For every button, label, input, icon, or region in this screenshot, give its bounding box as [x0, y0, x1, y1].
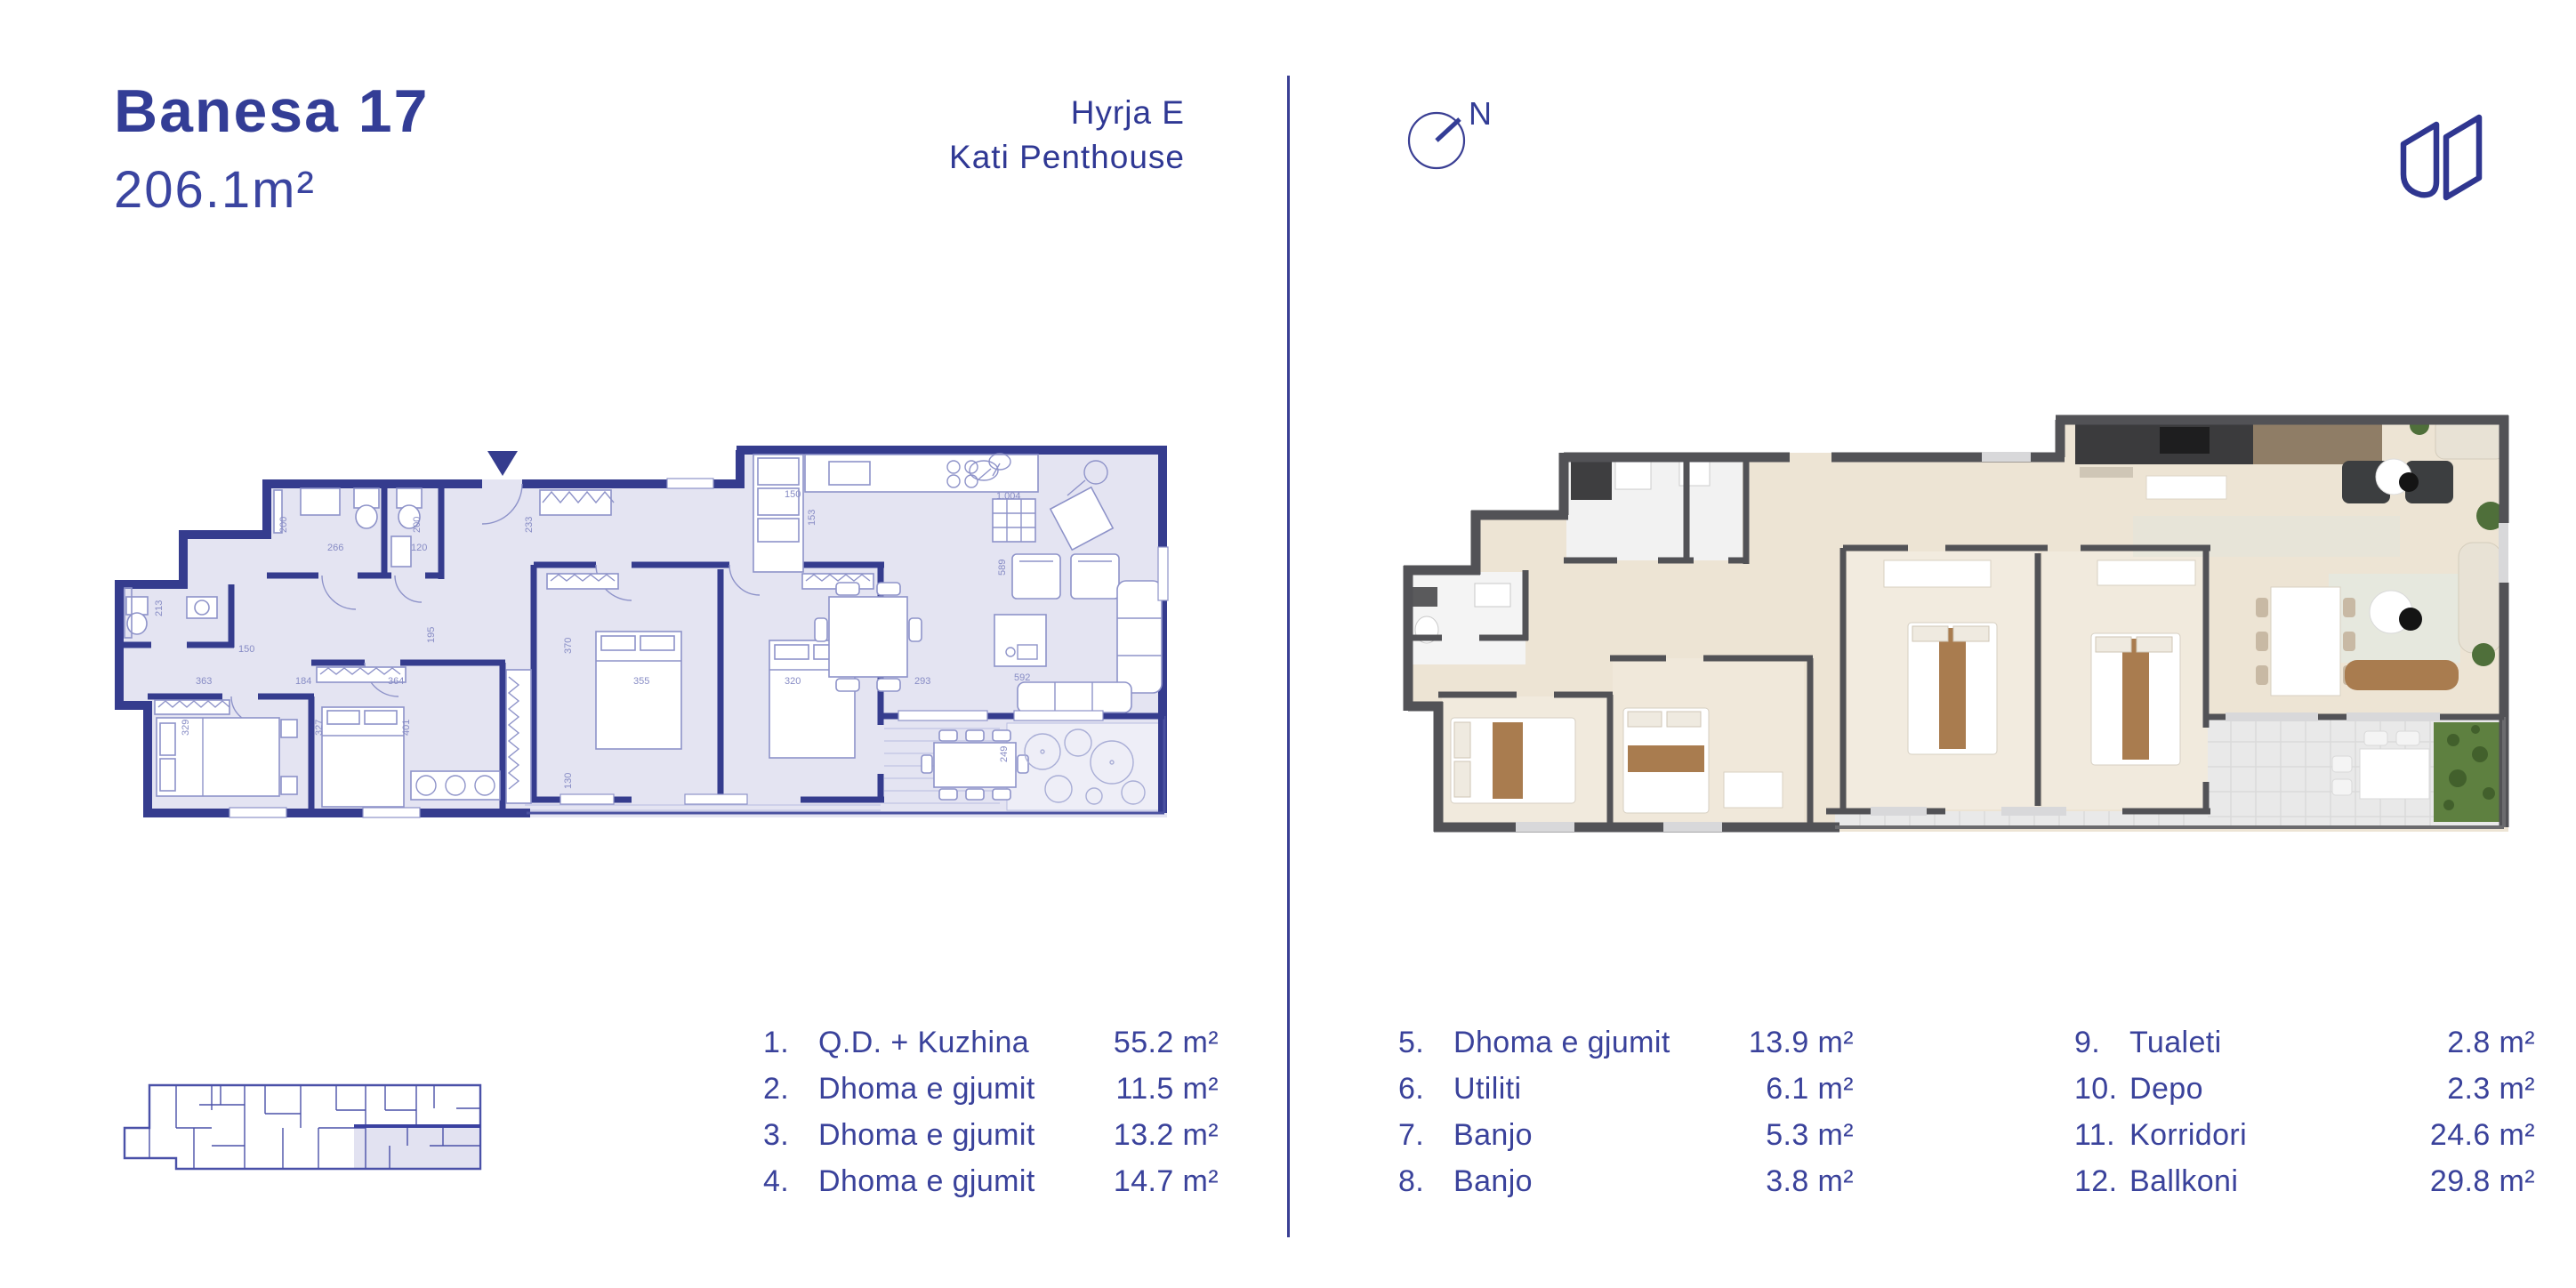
svg-text:589: 589	[997, 559, 1008, 576]
room-number: 11.	[2074, 1118, 2129, 1153]
room-row: 5. Dhoma e gjumit 13.9 m²	[1398, 1019, 1854, 1066]
room-number: 6.	[1398, 1072, 1453, 1107]
svg-text:1.004: 1.004	[996, 491, 1021, 502]
room-row: 11. Korridori 24.6 m²	[2074, 1112, 2535, 1158]
room-area: 5.3 m²	[1738, 1118, 1854, 1153]
svg-text:150: 150	[238, 644, 254, 655]
svg-text:401: 401	[401, 720, 412, 736]
room-area: 14.7 m²	[1103, 1164, 1219, 1199]
room-number: 4.	[763, 1164, 818, 1199]
room-list-2: 5. Dhoma e gjumit 13.9 m² 6. Utiliti 6.1…	[1398, 1019, 1854, 1204]
room-area: 29.8 m²	[2419, 1164, 2535, 1199]
room-row: 6. Utiliti 6.1 m²	[1398, 1066, 1854, 1112]
room-number: 3.	[763, 1118, 818, 1153]
room-number: 10.	[2074, 1072, 2129, 1107]
svg-text:150: 150	[785, 489, 801, 500]
room-name: Utiliti	[1453, 1072, 1738, 1107]
svg-text:195: 195	[426, 627, 437, 643]
svg-text:249: 249	[999, 746, 1010, 762]
svg-text:153: 153	[807, 510, 817, 526]
entry-arrow-icon	[487, 451, 518, 476]
room-row: 1. Q.D. + Kuzhina 55.2 m²	[763, 1019, 1219, 1066]
svg-text:320: 320	[785, 676, 801, 687]
room-number: 7.	[1398, 1118, 1453, 1153]
room-number: 9.	[2074, 1026, 2129, 1060]
room-row: 10. Depo 2.3 m²	[2074, 1066, 2535, 1112]
svg-text:120: 120	[411, 543, 427, 553]
room-name: Tualeti	[2129, 1026, 2419, 1060]
room-area: 2.3 m²	[2419, 1072, 2535, 1107]
room-name: Dhoma e gjumit	[818, 1072, 1103, 1107]
room-number: 5.	[1398, 1026, 1453, 1060]
room-name: Banjo	[1453, 1164, 1738, 1199]
room-row: 4. Dhoma e gjumit 14.7 m²	[763, 1158, 1219, 1204]
compass-north-label: N	[1469, 95, 1492, 132]
svg-text:213: 213	[154, 600, 165, 616]
room-number: 1.	[763, 1026, 818, 1060]
svg-text:355: 355	[633, 676, 649, 687]
svg-text:200: 200	[278, 517, 289, 533]
room-area: 24.6 m²	[2419, 1118, 2535, 1153]
room-name: Korridori	[2129, 1118, 2419, 1153]
vertical-divider	[1287, 76, 1290, 1237]
building-key-plan	[114, 1075, 492, 1190]
key-plan-highlight	[354, 1126, 479, 1169]
svg-text:200: 200	[412, 517, 423, 533]
floor-label: Kati Penthouse	[783, 135, 1185, 180]
svg-text:370: 370	[563, 638, 574, 654]
schematic-floor-plan: 2002002661202331952131501501531.00458959…	[98, 440, 1201, 823]
rendered-floor-plan	[1386, 409, 2551, 841]
apartment-total-area: 206.1m²	[114, 160, 316, 220]
room-row: 3. Dhoma e gjumit 13.2 m²	[763, 1112, 1219, 1158]
svg-text:293: 293	[914, 676, 930, 687]
room-area: 11.5 m²	[1103, 1072, 1219, 1107]
svg-text:233: 233	[524, 517, 535, 533]
room-name: Dhoma e gjumit	[818, 1164, 1103, 1199]
svg-text:363: 363	[196, 676, 212, 687]
room-list-3: 9. Tualeti 2.8 m² 10. Depo 2.3 m² 11. Ko…	[2074, 1019, 2535, 1204]
dining-table-icon	[815, 583, 922, 691]
room-row: 9. Tualeti 2.8 m²	[2074, 1019, 2535, 1066]
svg-text:327: 327	[314, 720, 325, 736]
room-area: 13.9 m²	[1738, 1026, 1854, 1060]
balcony-planting-area	[1007, 723, 1160, 810]
room-list-1: 1. Q.D. + Kuzhina 55.2 m² 2. Dhoma e gju…	[763, 1019, 1219, 1204]
room-row: 7. Banjo 5.3 m²	[1398, 1112, 1854, 1158]
room-number: 2.	[763, 1072, 818, 1107]
room-row: 12. Ballkoni 29.8 m²	[2074, 1158, 2535, 1204]
room-name: Ballkoni	[2129, 1164, 2419, 1199]
room-name: Q.D. + Kuzhina	[818, 1026, 1103, 1060]
location-block: Hyrja E Kati Penthouse	[783, 91, 1185, 179]
room-row: 8. Banjo 3.8 m²	[1398, 1158, 1854, 1204]
brand-logo-icon	[2386, 96, 2501, 203]
room-number: 12.	[2074, 1164, 2129, 1199]
room-name: Depo	[2129, 1072, 2419, 1107]
room-name: Dhoma e gjumit	[1453, 1026, 1738, 1060]
svg-text:130: 130	[563, 773, 574, 789]
svg-text:364: 364	[388, 676, 404, 687]
room-area: 55.2 m²	[1103, 1026, 1219, 1060]
room-area: 6.1 m²	[1738, 1072, 1854, 1107]
entry-label: Hyrja E	[783, 91, 1185, 135]
room-name: Banjo	[1453, 1118, 1738, 1153]
room-area: 3.8 m²	[1738, 1164, 1854, 1199]
room-row: 2. Dhoma e gjumit 11.5 m²	[763, 1066, 1219, 1112]
north-compass-icon: N	[1401, 89, 1517, 182]
svg-text:329: 329	[181, 720, 191, 736]
page-title: Banesa 17	[114, 76, 429, 146]
svg-text:184: 184	[295, 676, 311, 687]
room-number: 8.	[1398, 1164, 1453, 1199]
room-area: 13.2 m²	[1103, 1118, 1219, 1153]
svg-text:266: 266	[327, 543, 343, 553]
room-name: Dhoma e gjumit	[818, 1118, 1103, 1153]
room-area: 2.8 m²	[2419, 1026, 2535, 1060]
svg-text:592: 592	[1014, 672, 1030, 683]
